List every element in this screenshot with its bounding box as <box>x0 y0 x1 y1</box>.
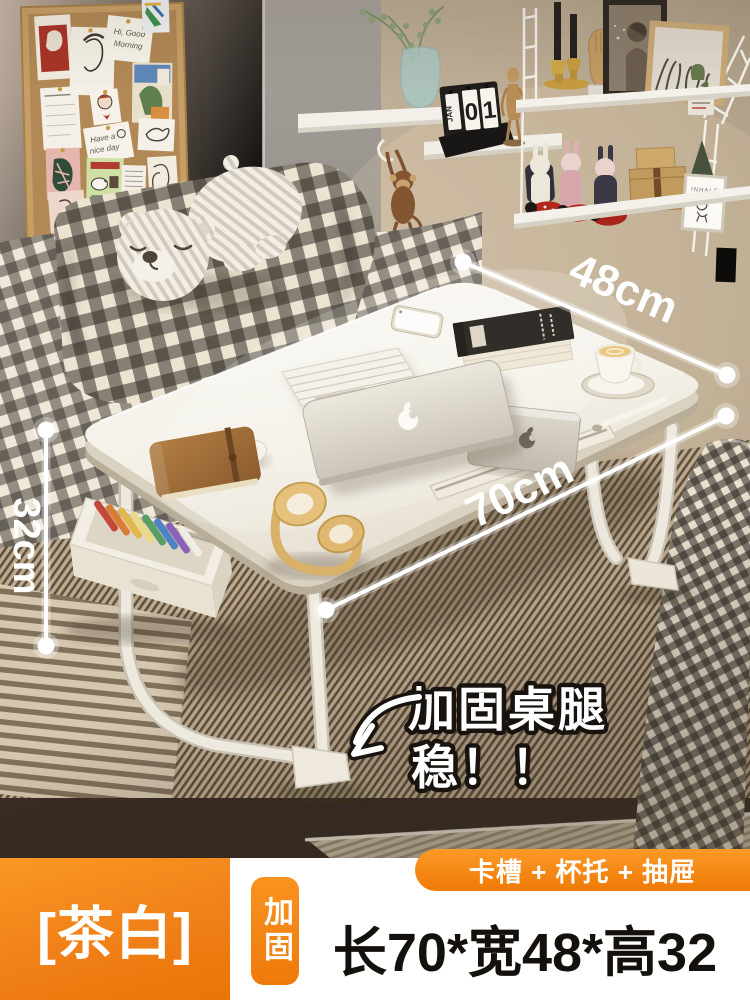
svg-text:0: 0 <box>463 98 479 126</box>
color-name-block: [茶白] <box>0 858 230 1000</box>
pinboard-card-calendar <box>40 86 82 150</box>
reinforced-badge: 加固 <box>251 877 299 985</box>
color-name-label: [茶白] <box>37 888 193 970</box>
hanging-dark-object <box>715 248 736 283</box>
svg-text:1: 1 <box>481 96 497 124</box>
size-dimensions-text: 长70*宽48*高32 <box>305 906 745 1000</box>
height-label: 32cm <box>5 497 47 594</box>
svg-text:JAN: JAN <box>444 105 455 122</box>
reinforced-badge-label: 加固 <box>253 896 297 966</box>
callout-line2: 稳！！ <box>411 741 561 794</box>
info-banner: [茶白] 加固 卡槽 + 杯托 + 抽屉 长70*宽48*高32 <box>0 858 750 1000</box>
features-ribbon-label: 卡槽 + 杯托 + 抽屉 <box>469 852 696 889</box>
product-image: Hi, Good Morning <box>0 0 750 1000</box>
bear-nose <box>143 251 158 263</box>
bedroom-scene-photo: Hi, Good Morning <box>0 0 750 858</box>
stylus-hole <box>592 425 602 432</box>
latte <box>599 346 631 357</box>
callout-line1: 加固桌腿 <box>408 683 608 736</box>
vignette <box>0 0 750 90</box>
scene-svg: Hi, Good Morning <box>0 0 750 858</box>
pinboard-card-dove <box>138 118 175 152</box>
features-ribbon: 卡槽 + 杯托 + 抽屉 <box>415 849 750 891</box>
